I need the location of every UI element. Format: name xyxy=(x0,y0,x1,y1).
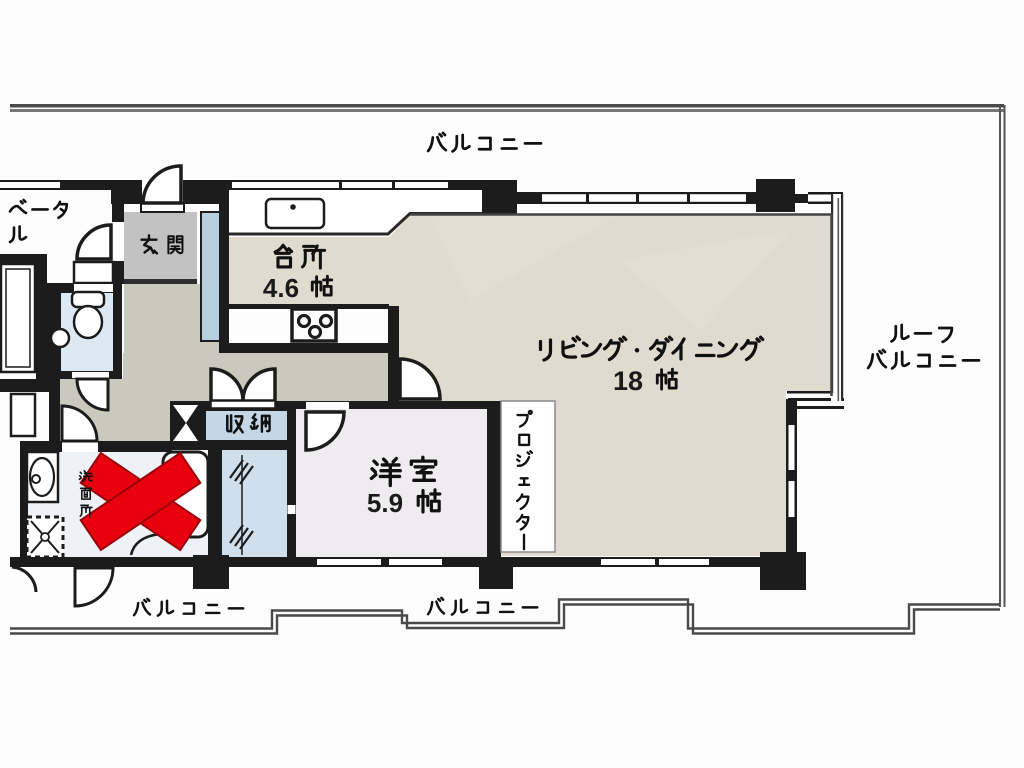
svg-text:4.6: 4.6 xyxy=(263,273,299,303)
svg-text:5.9: 5.9 xyxy=(367,488,403,518)
svg-text:18: 18 xyxy=(613,366,643,396)
